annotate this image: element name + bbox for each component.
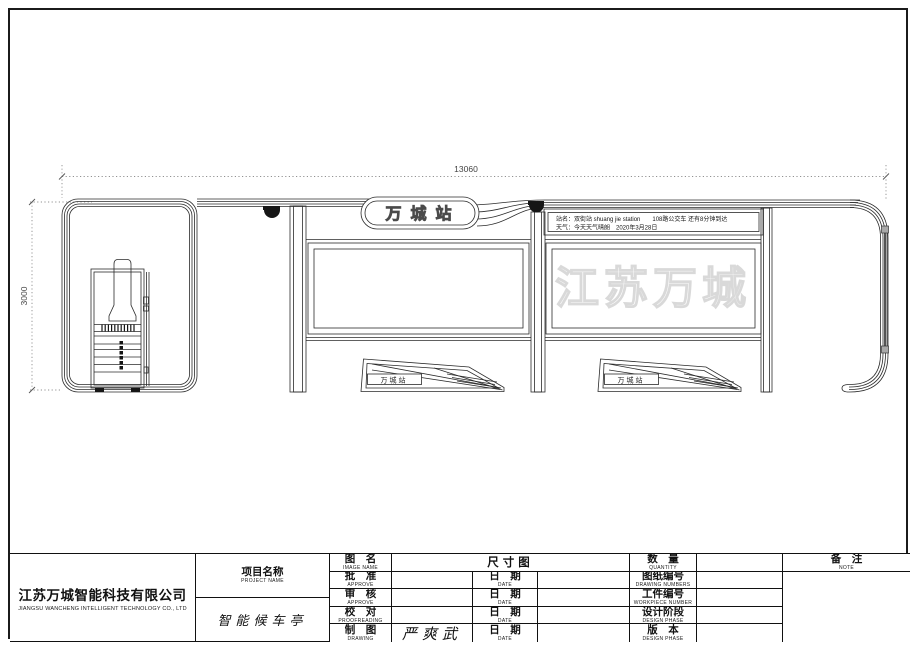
note-body xyxy=(783,572,910,642)
audit-value xyxy=(392,589,473,607)
quantity-label: 数 量 QUANTITY xyxy=(630,554,697,572)
dome-camera-right xyxy=(528,201,544,213)
shelter-structure: 江苏万城 站名：双街站 shuang jie station 108路公交车 还… xyxy=(62,197,889,392)
board-line1: 站名：双街站 shuang jie station 108路公交车 还有8分钟到… xyxy=(556,215,727,223)
audit-date-value xyxy=(538,589,630,607)
dome-camera-left xyxy=(263,206,280,218)
project-label-cn: 项目名称 xyxy=(242,567,284,578)
company-cell: 江苏万城智能科技有限公司 JIANGSU WANCHENG INTELLIGEN… xyxy=(10,554,196,642)
drawing-name-value: 尺寸图 xyxy=(392,554,630,572)
width-dimension-label: 13060 xyxy=(454,164,478,174)
project-label-en: PROJECT NAME xyxy=(241,579,284,584)
proofread-label: 校 对 PROOFREADING xyxy=(330,607,392,625)
note-label: 备 注 NOTE xyxy=(783,554,910,572)
ad-panel-left xyxy=(308,243,529,334)
bench-label: 万城站 xyxy=(381,376,408,385)
drawing-sheet: 13060 3000 xyxy=(0,0,920,651)
draft-value: 严爽武 xyxy=(392,624,473,642)
approve-value xyxy=(392,572,473,590)
design-phase-label: 设计阶段 DESIGN PHASE xyxy=(630,607,697,625)
left-end-frame xyxy=(62,199,197,392)
draft-date-label: 日 期 DATE xyxy=(473,624,538,642)
height-dimension-label: 3000 xyxy=(19,286,29,305)
design-phase-value xyxy=(697,607,783,625)
workpiece-no-value xyxy=(697,589,783,607)
company-name-cn: 江苏万城智能科技有限公司 xyxy=(19,584,187,604)
draft-date-value xyxy=(538,624,630,642)
drafter-signature: 严爽武 xyxy=(402,624,462,642)
drawing-no-label: 图纸编号 DRAWING NUMBERS xyxy=(630,572,697,590)
project-name-value: 智能候车亭 xyxy=(217,610,307,629)
drawing-no-value xyxy=(697,572,783,590)
proofread-date-label: 日 期 DATE xyxy=(473,607,538,625)
station-sign: 万城站 xyxy=(361,197,479,229)
approve-date-label: 日 期 DATE xyxy=(473,572,538,590)
ad-panel-right: 江苏万城 xyxy=(546,243,761,334)
roof-band-left xyxy=(197,199,372,207)
info-display-board: 站名：双街站 shuang jie station 108路公交车 还有8分钟到… xyxy=(544,209,763,235)
company-name-en: JIANGSU WANCHENG INTELLIGENT TECHNOLOGY … xyxy=(18,606,187,612)
audit-label: 审 核 APPROVE xyxy=(330,589,392,607)
right-end-frame xyxy=(842,200,889,392)
leaning-bench: 万城站 xyxy=(361,359,504,392)
project-cell: 项目名称 PROJECT NAME 智能候车亭 xyxy=(196,554,330,642)
watermark-text: 江苏万城 xyxy=(555,264,751,313)
approve-date-value xyxy=(538,572,630,590)
station-sign-label: 万城站 xyxy=(384,204,460,223)
leaning-bench-2 xyxy=(598,359,741,392)
approve-label: 批 准 APPROVE xyxy=(330,572,392,590)
title-block: 江苏万城智能科技有限公司 JIANGSU WANCHENG INTELLIGEN… xyxy=(10,553,910,642)
board-line2: 天气：今天天气晴朗 2020年3月28日 xyxy=(556,224,657,232)
draft-label: 制 图 DRAWING xyxy=(330,624,392,642)
proofread-value xyxy=(392,607,473,625)
version-label: 版 本 DESIGN PHASE xyxy=(630,624,697,642)
audit-date-label: 日 期 DATE xyxy=(473,589,538,607)
quantity-value xyxy=(697,554,783,572)
kiosk-machine xyxy=(91,260,149,393)
drawing-name-label: 图 名 IMAGE NAME xyxy=(330,554,392,572)
proofread-date-value xyxy=(538,607,630,625)
workpiece-no-label: 工件编号 WORKPIECE NUMBER xyxy=(630,589,697,607)
version-value xyxy=(697,624,783,642)
